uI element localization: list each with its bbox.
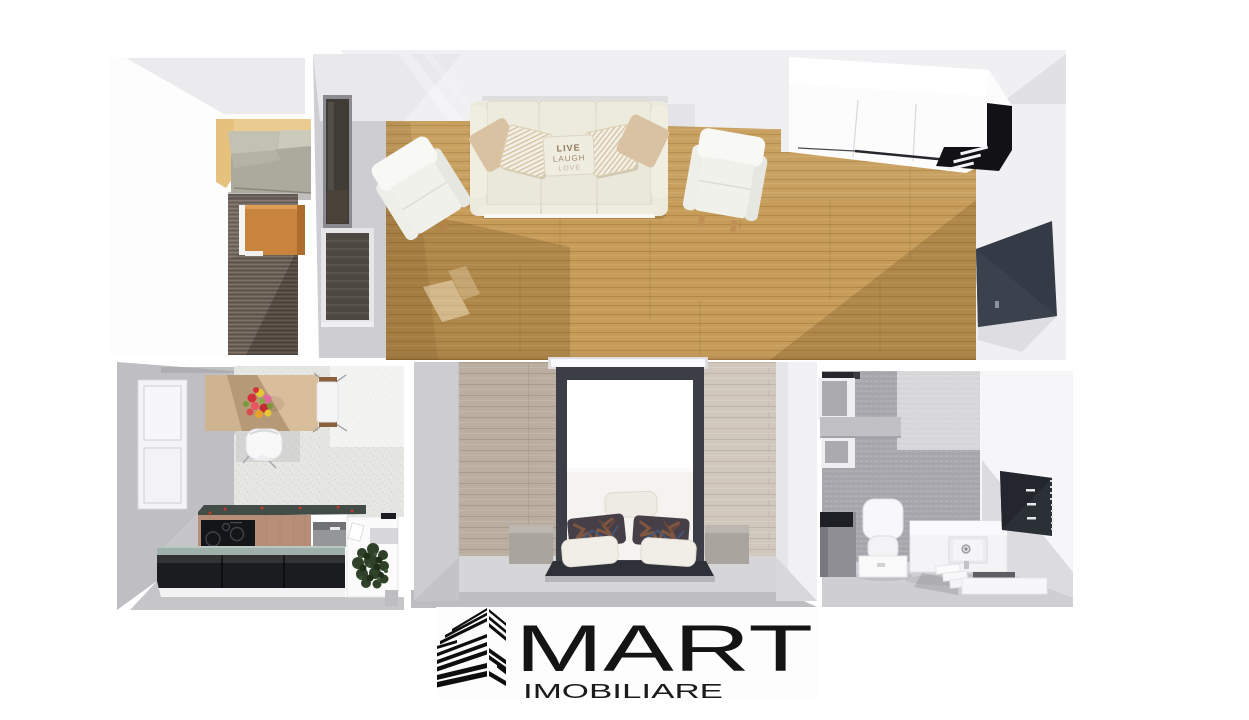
svg-text:LOVE: LOVE — [558, 164, 581, 172]
svg-text:MART: MART — [515, 611, 813, 685]
svg-text:IMOBILIARE: IMOBILIARE — [523, 681, 723, 703]
svg-text:LIVE: LIVE — [556, 142, 581, 153]
svg-text:LAUGH: LAUGH — [553, 153, 586, 164]
